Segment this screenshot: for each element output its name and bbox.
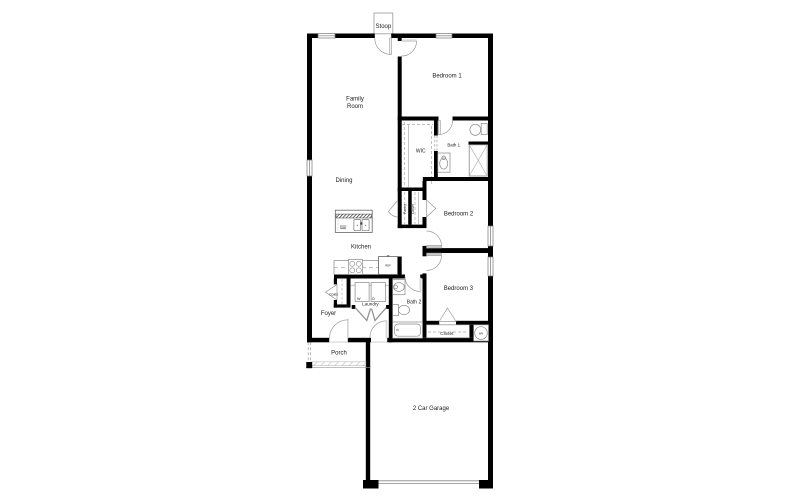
svg-text:Coats: Coats: [329, 292, 338, 296]
svg-text:Porch: Porch: [331, 351, 347, 357]
svg-text:Closet: Closet: [411, 204, 415, 214]
svg-text:WH: WH: [479, 331, 483, 335]
svg-text:Bedroom 2: Bedroom 2: [444, 212, 474, 218]
svg-text:Foyer: Foyer: [321, 311, 336, 317]
svg-text:Stoop: Stoop: [376, 24, 392, 30]
svg-text:Room: Room: [347, 104, 363, 110]
svg-text:Bath 2: Bath 2: [407, 300, 422, 306]
svg-text:WIC: WIC: [416, 149, 426, 155]
svg-text:W: W: [357, 297, 361, 301]
svg-text:Closet: Closet: [440, 331, 454, 336]
svg-text:Laundry: Laundry: [362, 302, 379, 307]
svg-text:Kitchen: Kitchen: [351, 245, 371, 251]
svg-text:Family: Family: [346, 97, 364, 103]
svg-text:Bedroom 1: Bedroom 1: [432, 74, 462, 80]
svg-text:Pantry: Pantry: [403, 204, 407, 214]
svg-text:D: D: [372, 297, 375, 301]
svg-text:Dining: Dining: [335, 178, 352, 184]
svg-text:Bath 1: Bath 1: [447, 143, 460, 148]
svg-text:Bedroom 3: Bedroom 3: [444, 286, 474, 292]
svg-text:REF: REF: [385, 264, 391, 268]
svg-text:2 Car Garage: 2 Car Garage: [413, 406, 450, 412]
